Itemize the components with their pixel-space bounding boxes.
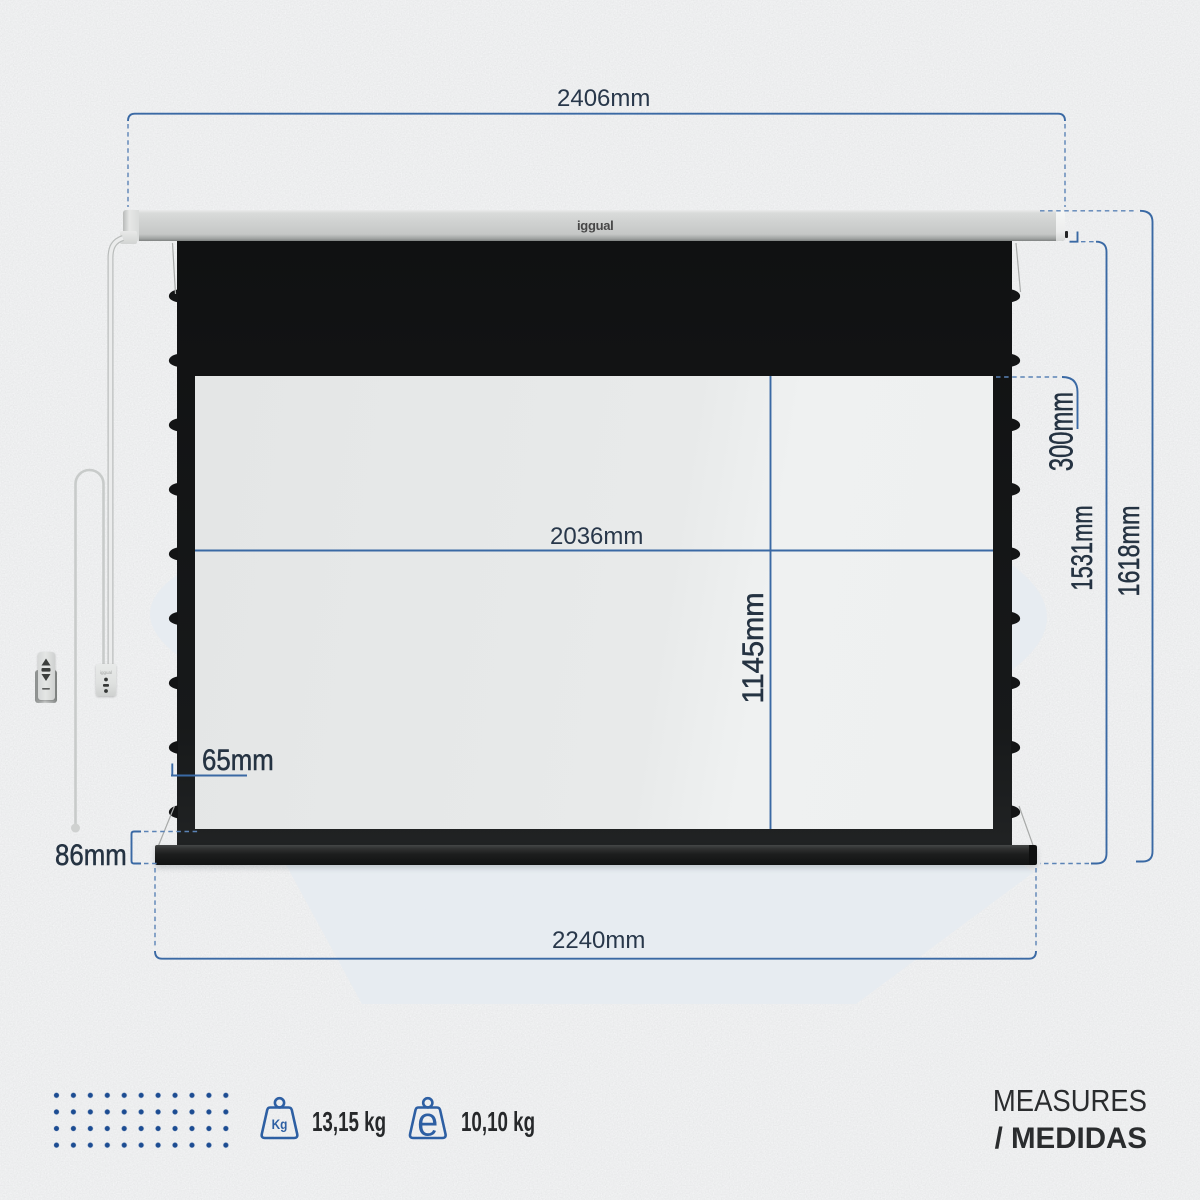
- svg-text:e: e: [417, 1099, 438, 1145]
- svg-text:Kg: Kg: [272, 1116, 288, 1132]
